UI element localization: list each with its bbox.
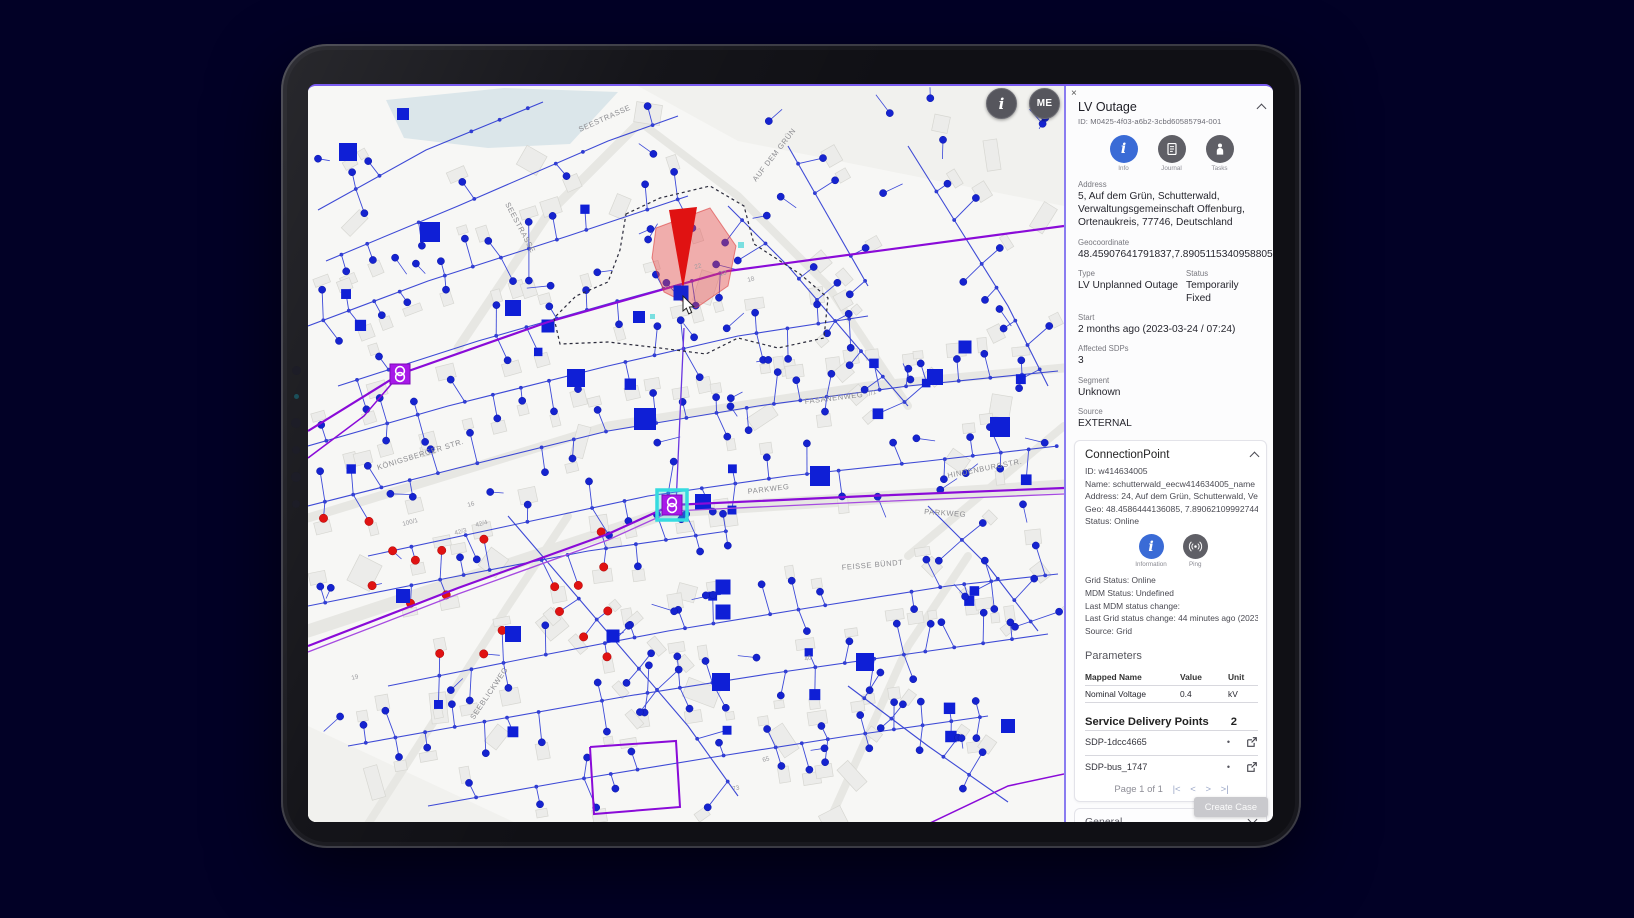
- outage-detail-panel: × LV Outage ID: M0425-4f03-a6b2-3cbd6058…: [1064, 86, 1273, 822]
- prev-page-button[interactable]: <: [1190, 784, 1196, 795]
- info-action-button[interactable]: i Info: [1110, 135, 1138, 172]
- sdp-row[interactable]: SDP-1dcc4665 •: [1085, 730, 1258, 753]
- field-start: Start 2 months ago (2023-03-24 / 07:24): [1078, 313, 1265, 336]
- bezel-camera-dot: [292, 446, 300, 454]
- house-number-label: 18: [747, 275, 756, 284]
- house-number-label: 16: [467, 500, 476, 509]
- house-number-label: 19: [351, 673, 360, 682]
- cp-last-grid-change: Last Grid status change: 44 minutes ago …: [1085, 612, 1258, 625]
- tablet-frame: SEESTRASSESEESTRASSEAUF DEM GRÜNFASANENW…: [281, 44, 1301, 848]
- cp-last-mdm-change: Last MDM status change:: [1085, 600, 1258, 613]
- user-avatar-button[interactable]: ME: [1029, 88, 1060, 119]
- journal-action-button[interactable]: Journal: [1158, 135, 1186, 172]
- next-page-button[interactable]: >: [1205, 784, 1211, 795]
- field-type: Type LV Unplanned Outage: [1078, 269, 1186, 305]
- sdp-status-dot-icon: •: [1227, 737, 1230, 747]
- map-canvas[interactable]: SEESTRASSESEESTRASSEAUF DEM GRÜNFASANENW…: [308, 86, 1064, 822]
- cp-grid-status: Grid Status: Online: [1085, 574, 1258, 587]
- collapse-chevron-up-icon[interactable]: [1257, 104, 1267, 114]
- panel-title: LV Outage: [1078, 100, 1258, 114]
- house-number-label: 73: [732, 784, 741, 793]
- outage-actions: i Info Journal: [1078, 135, 1265, 172]
- field-source: Source EXTERNAL: [1078, 407, 1265, 430]
- page-indicator: Page 1 of 1: [1114, 784, 1163, 795]
- parameters-header-row: Mapped Name Value Unit: [1085, 669, 1258, 686]
- parameters-table: Mapped Name Value Unit Nominal Voltage 0…: [1085, 669, 1258, 703]
- field-geocoordinate: Geocoordinate 48.45907641791837,7.890511…: [1078, 238, 1265, 261]
- field-affected-sdps: Affected SDPs 3: [1078, 344, 1265, 367]
- last-page-button[interactable]: >|: [1221, 784, 1229, 795]
- sdp-row[interactable]: SDP-bus_1747 •: [1085, 755, 1258, 778]
- close-icon[interactable]: ×: [1071, 89, 1077, 99]
- tasks-action-button[interactable]: Tasks: [1206, 135, 1234, 172]
- parameters-title: Parameters: [1085, 650, 1258, 662]
- bezel-camera-dot: [292, 366, 301, 375]
- ping-icon: [1183, 534, 1208, 559]
- outage-id: ID: M0425-4f03-a6b2-3cbd60585794-001: [1078, 117, 1265, 126]
- field-segment: Segment Unknown: [1078, 376, 1265, 399]
- house-number-label: 65: [762, 755, 771, 764]
- cp-status: Status: Online: [1085, 515, 1258, 528]
- cp-address: Address: 24, Auf dem Grün, Schutterwald,…: [1085, 490, 1258, 503]
- sdp-pagination: Page 1 of 1 |< < > >|: [1085, 784, 1258, 795]
- street-label: FEISSE BÜNDT: [841, 558, 903, 572]
- cp-actions: i Information Ping: [1085, 534, 1258, 568]
- bezel-camera-dot: [291, 472, 301, 482]
- app-screen: SEESTRASSESEESTRASSEAUF DEM GRÜNFASANENW…: [308, 84, 1273, 822]
- transformer-station[interactable]: [390, 364, 410, 384]
- cp-id: ID: w414634005: [1085, 465, 1258, 478]
- info-icon: i: [1110, 135, 1138, 163]
- lake-water: [386, 88, 618, 148]
- field-status: Status Temporarily Fixed: [1186, 269, 1265, 305]
- cp-geo: Geo: 48.4586444136085, 7.890621099927445: [1085, 503, 1258, 516]
- sdp-status-dot-icon: •: [1227, 762, 1230, 772]
- bezel-camera-dot: [291, 418, 301, 428]
- info-icon: i: [999, 95, 1005, 113]
- parameters-row: Nominal Voltage 0.4 kV: [1085, 686, 1258, 703]
- create-case-button[interactable]: Create Case: [1194, 797, 1268, 817]
- collapse-chevron-up-icon[interactable]: [1250, 452, 1260, 462]
- cp-name: Name: schutterwald_eecw414634005_name: [1085, 478, 1258, 491]
- journal-icon: [1158, 135, 1186, 163]
- street-label: PARKWEG: [747, 482, 790, 496]
- external-link-icon[interactable]: [1246, 761, 1258, 773]
- first-page-button[interactable]: |<: [1173, 784, 1181, 795]
- tasks-icon: [1206, 135, 1234, 163]
- grid-map[interactable]: SEESTRASSESEESTRASSEAUF DEM GRÜNFASANENW…: [308, 86, 1064, 822]
- connection-point-title: ConnectionPoint: [1085, 449, 1251, 461]
- cp-source: Source: Grid: [1085, 625, 1258, 638]
- selected-connection-point[interactable]: [674, 286, 689, 301]
- sdp-section-header: Service Delivery Points 2: [1085, 716, 1258, 728]
- house-number-label: 100/1: [402, 517, 420, 528]
- bezel-camera-dot: [292, 500, 300, 508]
- page-background: SEESTRASSESEESTRASSEAUF DEM GRÜNFASANENW…: [0, 0, 1634, 918]
- sdp-count-badge: 2: [1231, 716, 1237, 728]
- external-link-icon[interactable]: [1246, 736, 1258, 748]
- map-info-button[interactable]: i: [986, 88, 1017, 119]
- cp-ping-button[interactable]: Ping: [1183, 534, 1208, 568]
- information-icon: i: [1139, 534, 1164, 559]
- connection-point-card: ConnectionPoint ID: w414634005 Name: sch…: [1074, 440, 1267, 802]
- transformer-station[interactable]: [657, 490, 687, 520]
- cp-mdm-status: MDM Status: Undefined: [1085, 587, 1258, 600]
- field-address: Address 5, Auf dem Grün, Schutterwald, V…: [1078, 180, 1265, 230]
- bezel-camera-dot: [294, 394, 299, 399]
- street-label: PARKWEG: [924, 507, 967, 519]
- cp-information-button[interactable]: i Information: [1135, 534, 1167, 568]
- avatar: ME: [1037, 98, 1053, 109]
